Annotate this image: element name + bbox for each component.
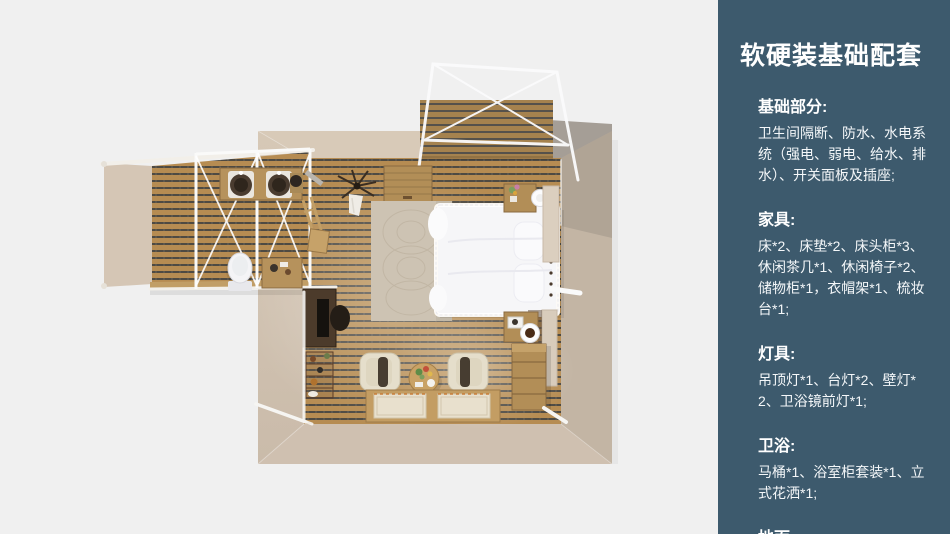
info-panel: 软硬装基础配套 基础部分: 卫生间隔断、防水、水电系统（强电、弱电、给水、排水）… — [718, 0, 950, 534]
armchair-right — [448, 353, 488, 391]
floorplan-svg — [0, 0, 718, 534]
shoe-rack — [306, 352, 333, 398]
wardrobe — [384, 166, 432, 207]
section-heading: 卫浴: — [758, 437, 937, 457]
panel-title: 软硬装基础配套 — [740, 42, 937, 71]
wing-left-wall — [104, 163, 152, 287]
floor-mat — [374, 394, 426, 418]
fur-throw — [428, 208, 448, 240]
section-heading: 灯具: — [758, 345, 937, 365]
panel-sections: 基础部分: 卫生间隔断、防水、水电系统（强电、弱电、给水、排水）、开关面板及插座… — [740, 98, 937, 534]
section-heading: 地面: — [758, 529, 937, 534]
floorplan-render — [0, 0, 718, 534]
section-body: 马桶*1、浴室柜套装*1、立式花洒*1; — [758, 462, 937, 504]
dresser — [512, 344, 551, 410]
section-heading: 基础部分: — [758, 98, 937, 118]
floor-mats-platform — [366, 390, 500, 422]
office-chair — [330, 305, 350, 331]
floor-mat — [438, 394, 490, 418]
bathroom-wing — [101, 149, 336, 295]
vanity — [220, 168, 302, 200]
section-heading: 家具: — [758, 211, 937, 231]
wing-side-table — [262, 258, 302, 288]
slide: 软硬装基础配套 基础部分: 卫生间隔断、防水、水电系统（强电、弱电、给水、排水）… — [0, 0, 950, 534]
toilet — [226, 253, 254, 291]
section-body: 卫生间隔断、防水、水电系统（强电、弱电、给水、排水）、开关面板及插座; — [758, 123, 937, 186]
pillow — [514, 222, 544, 260]
section-furniture: 家具: 床*2、床垫*2、床头柜*3、休闲茶几*1、休闲椅子*2、储物柜*1，衣… — [758, 211, 937, 320]
monitor — [317, 299, 329, 337]
section-body: 吊顶灯*1、台灯*2、壁灯*2、卫浴镜前灯*1; — [758, 370, 937, 412]
armchair-left — [360, 353, 400, 391]
section-basics: 基础部分: 卫生间隔断、防水、水电系统（强电、弱电、给水、排水）、开关面板及插座… — [758, 98, 937, 186]
section-flooring: 地面: 强化木地板、卫生间防滑防潮石塑板; — [758, 529, 937, 534]
flowers — [416, 369, 423, 376]
fur-throw — [429, 285, 447, 311]
section-bathroom: 卫浴: 马桶*1、浴室柜套装*1、立式花洒*1; — [758, 437, 937, 504]
nightstand-bottom — [504, 310, 542, 346]
section-body: 床*2、床垫*2、床头柜*3、休闲茶几*1、休闲椅子*2、储物柜*1，衣帽架*1… — [758, 236, 937, 320]
section-lighting: 灯具: 吊顶灯*1、台灯*2、壁灯*2、卫浴镜前灯*1; — [758, 345, 937, 412]
